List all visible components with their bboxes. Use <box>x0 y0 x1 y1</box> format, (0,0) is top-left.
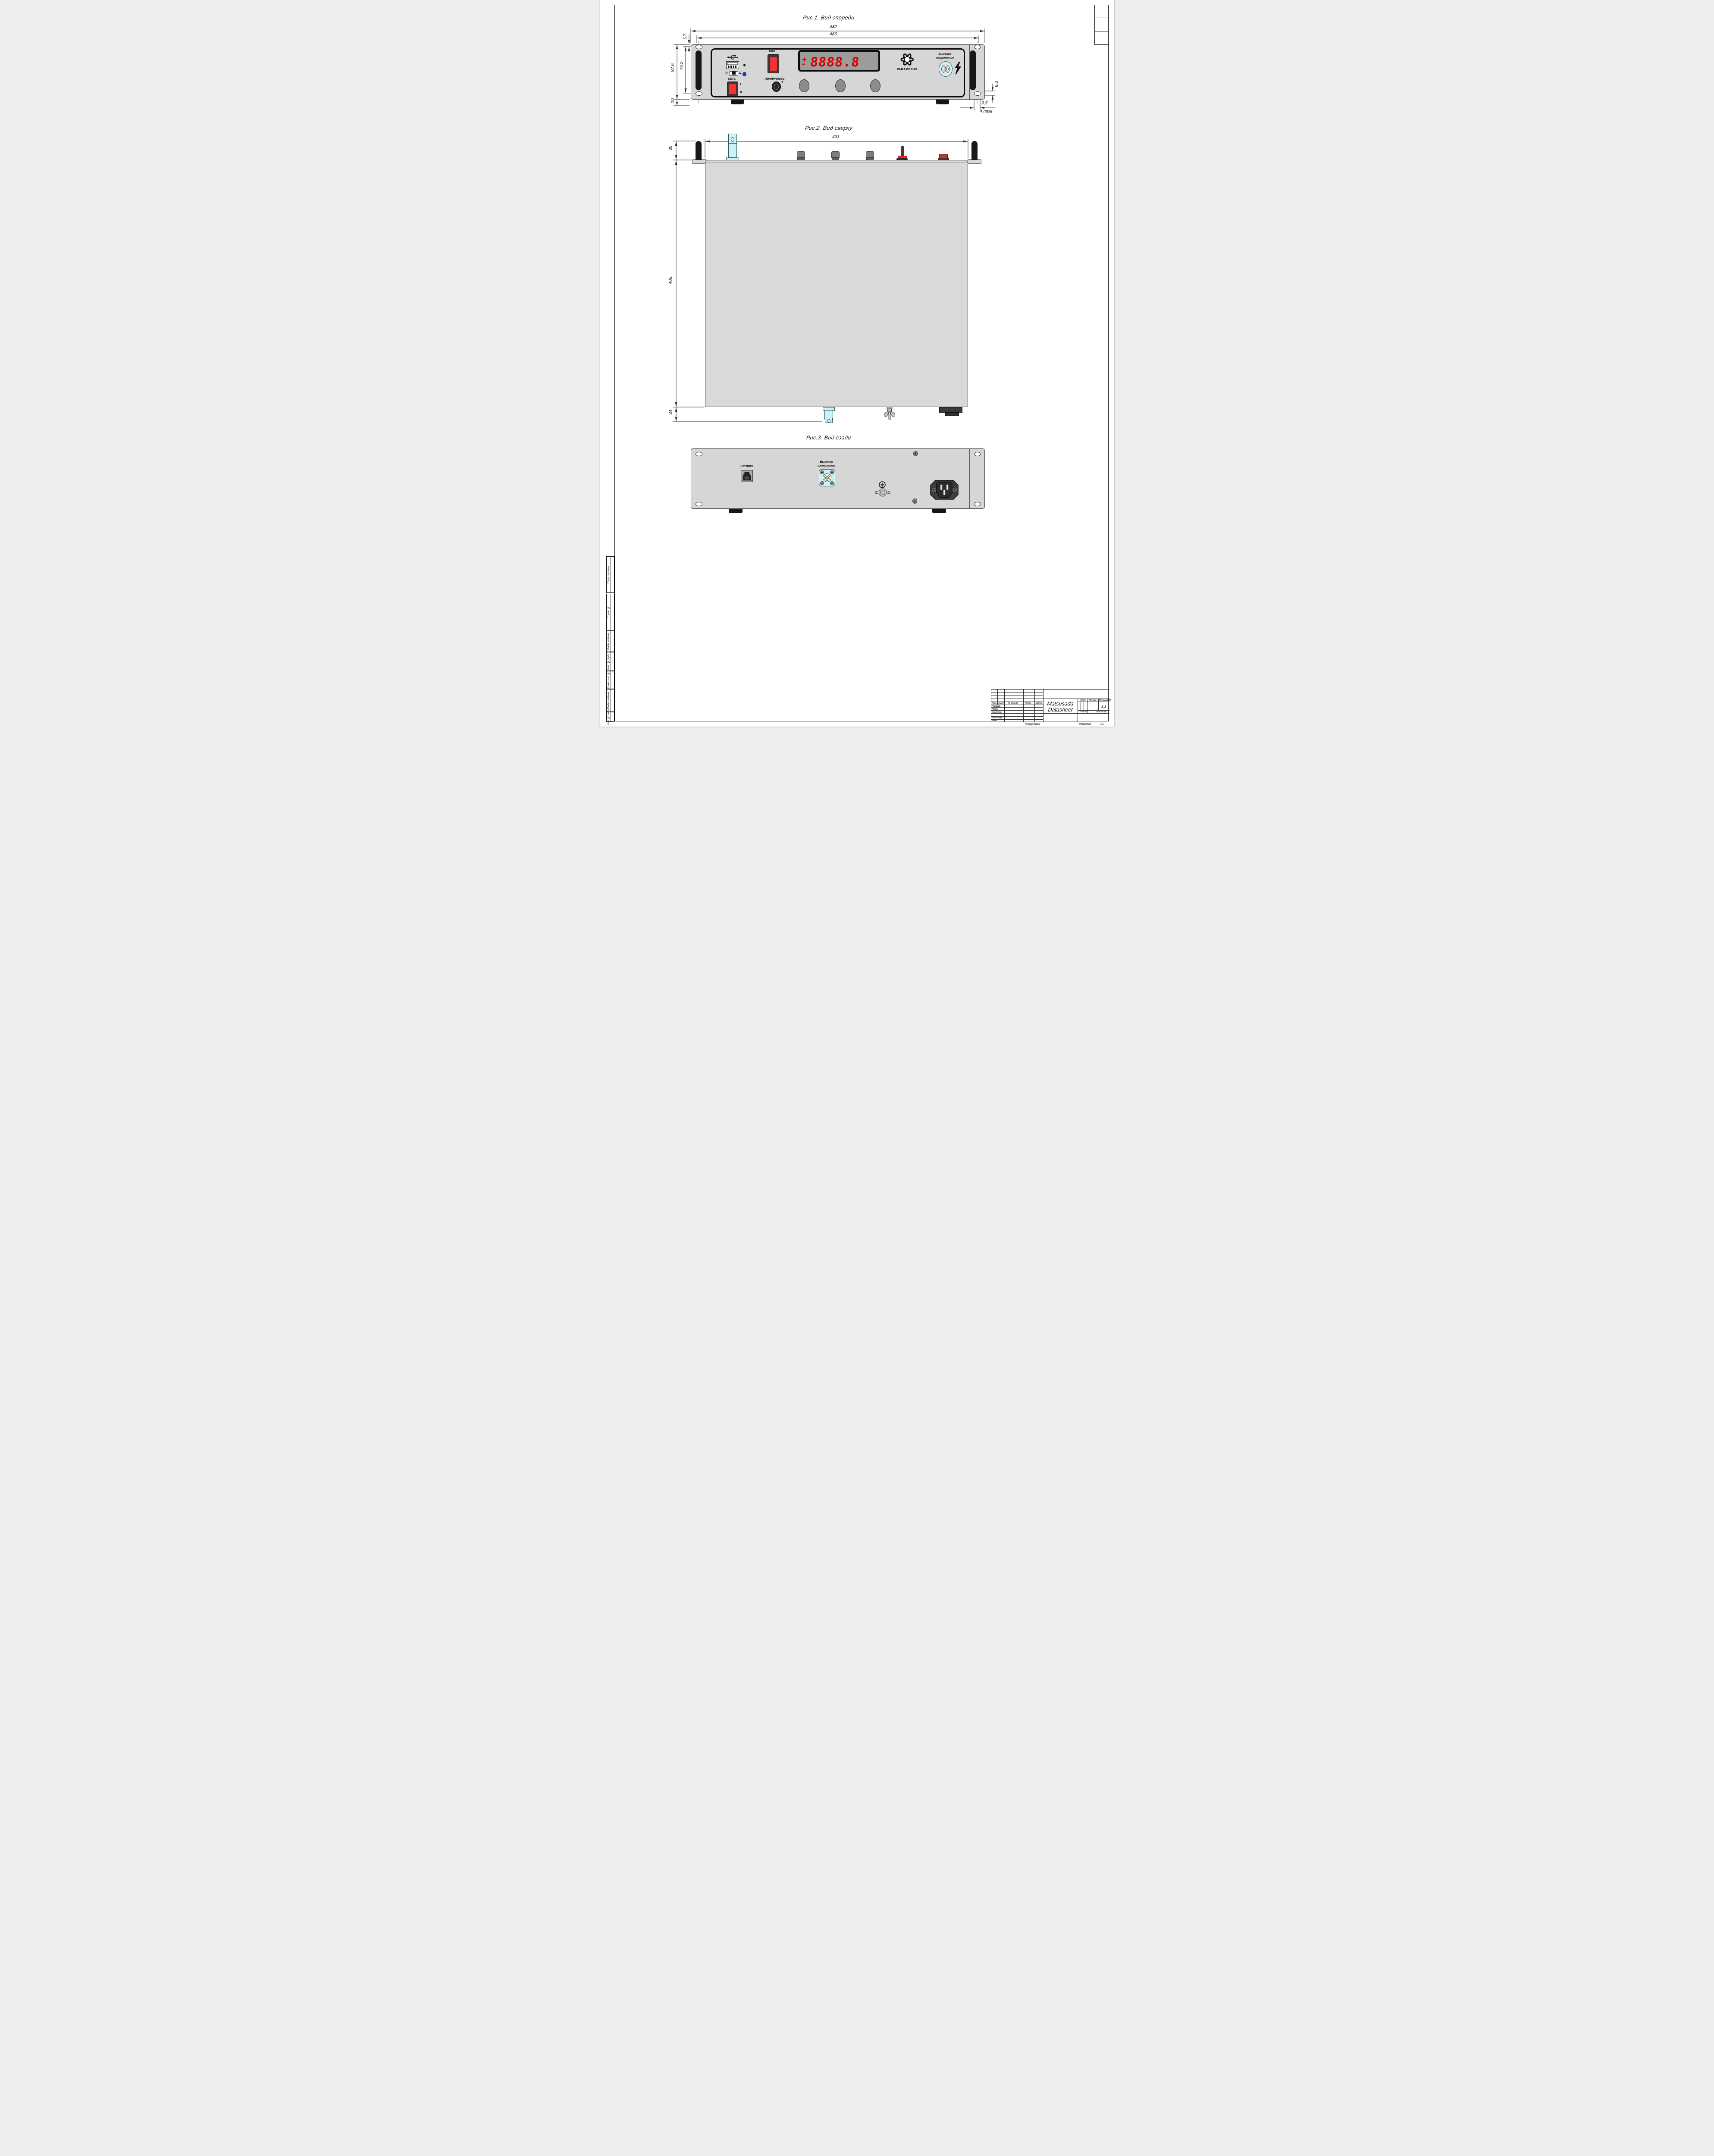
tb-lit: Лит. <box>1080 699 1086 702</box>
display-digits: 8888.8 <box>809 55 860 70</box>
dim-handle-depth: 30 <box>668 145 673 150</box>
dim-slot-height: 6,3 <box>994 81 999 87</box>
foot <box>936 100 949 104</box>
polarity-minus: - <box>782 87 783 91</box>
dim-body-depth: 405 <box>668 276 673 284</box>
rack-handle-right <box>970 50 976 90</box>
rear-ear-divider-left <box>707 449 707 509</box>
foot <box>731 100 744 104</box>
tb-row-prov: Пров. <box>991 708 998 711</box>
hv-connector <box>939 61 953 77</box>
polarity-plus: + <box>781 80 783 84</box>
mounting-slot <box>696 45 702 49</box>
tb-col-doc: № докум. <box>1007 702 1018 705</box>
mains-label: СЕТЬ <box>728 78 736 81</box>
mode-a-label: А <box>726 72 728 75</box>
mode-switch <box>730 71 738 76</box>
hv-connector-rear-cap <box>825 418 833 423</box>
polarity-toggle <box>772 81 781 92</box>
format-label: Формат <box>1078 723 1091 726</box>
tb-scale: Масштаб <box>1098 699 1111 702</box>
tb-row-tkontr: Т.контр. <box>991 711 1002 714</box>
margin-cell-perv-primen: Перв. примен. <box>606 556 614 593</box>
mode-c-label: Ц <box>739 72 742 75</box>
ground-wing-screw <box>874 488 891 497</box>
mounting-slot <box>696 452 702 456</box>
hv-connector-top-body <box>728 143 737 158</box>
tb-col-izm: Изм. <box>991 702 997 705</box>
hv-connector-top-cap <box>728 134 737 143</box>
knob-3 <box>870 79 881 92</box>
mounting-slot <box>974 91 981 96</box>
tb-massa: Масса <box>1088 699 1097 702</box>
tb-col-date: Дата <box>1035 702 1042 705</box>
tb-col-list: Лист <box>998 702 1004 705</box>
brand-label: PARAMERUS <box>895 68 919 71</box>
top-chassis <box>705 160 968 407</box>
margin-cell-vzam: Взам. инв. № <box>606 671 614 689</box>
margin-label: Справ. № <box>607 594 611 631</box>
lightning-icon <box>954 62 962 75</box>
hv-rear-connector <box>819 469 835 486</box>
tb-col-sign: Подп. <box>1025 702 1031 705</box>
margin-label: Инв. № подл. <box>607 712 611 722</box>
tb-scale-value: 1:1 <box>1101 704 1106 708</box>
mounting-slot <box>696 91 702 96</box>
display-sign-minus: - <box>800 60 806 69</box>
mounting-slot <box>974 45 981 49</box>
rack-handle-top-left <box>696 141 702 160</box>
panel-screw <box>912 498 917 504</box>
margin-label: Подп. и дата <box>607 631 611 652</box>
margin-label: Инв. № дубл. <box>607 652 611 671</box>
dim-slots-note: 4 паза <box>979 109 993 114</box>
margin-label: Перв. примен. <box>607 557 611 593</box>
mounting-slot <box>974 452 981 456</box>
mains-on-label: I <box>740 83 741 86</box>
drawing-sheet: Рис.1. Вид спереди 482 466 87,6 76,2 5,7… <box>600 0 1114 727</box>
dim-top-width: 431 <box>832 135 840 139</box>
dim-slot-width: 9,5 <box>981 101 987 106</box>
margin-cell-sprav: Справ. № <box>606 594 614 631</box>
power-button <box>768 54 779 73</box>
margin-cell-podp1: Подп. и дата <box>606 631 614 652</box>
rear-ear-divider-right <box>969 449 970 509</box>
led-dot <box>743 64 746 66</box>
figure3-title: Рис.3. Вид сзади <box>806 435 852 441</box>
dim-slot-spacing: 76,2 <box>680 61 684 70</box>
figure2-title: Рис.2. Вид сверху <box>805 125 853 131</box>
power-inlet <box>930 479 959 500</box>
tb-product-2: Datasheet <box>1043 707 1077 713</box>
mounting-slot <box>696 502 702 506</box>
ethernet-port <box>741 470 753 482</box>
tb-row-utv: Утв. <box>991 720 997 722</box>
hv-label-1: Высокое <box>932 53 958 56</box>
usb-icon <box>727 54 738 60</box>
rear-hv-label-2: напряжение <box>814 464 840 467</box>
mounting-slot <box>974 502 981 506</box>
rack-handle-left <box>696 50 702 90</box>
dim-face-width: 466 <box>829 32 837 37</box>
mains-switch <box>727 81 738 97</box>
power-button-label: ВКЛ <box>769 50 775 53</box>
tb-product-1: Matsusada <box>1043 701 1077 707</box>
dim-overall-height: 87,6 <box>671 63 675 72</box>
tb-row-razrab: Разраб. <box>991 705 1001 708</box>
dim-foot-height: 10 <box>671 98 675 103</box>
knob-2 <box>835 79 846 92</box>
rack-handle-top-right <box>971 141 978 160</box>
margin-label: Взам. инв. № <box>607 671 611 689</box>
dim-overall-width: 482 <box>829 25 837 29</box>
dim-rear-protrusion: 24 <box>668 409 673 414</box>
power-led-blue <box>743 72 746 76</box>
hv-label-2: напряжение <box>932 56 958 60</box>
margin-cell-inv-podl: Инв. № подл. <box>606 712 614 722</box>
tb-row-nkontr: Н.контр. <box>991 717 1002 719</box>
dim-top-to-slot: 5,7 <box>683 33 688 40</box>
knob-1 <box>799 79 809 92</box>
usb-port <box>726 61 739 69</box>
rear-hv-label-1: Высокое <box>814 461 840 464</box>
tb-listov-value: 1 <box>1106 711 1107 713</box>
brand-logo-icon <box>899 52 915 67</box>
ground-icon <box>879 481 886 488</box>
foot <box>932 509 946 513</box>
copied-label: Копировал <box>1025 723 1040 726</box>
ethernet-label: Ethernet <box>734 465 760 468</box>
mains-off-label: 0 <box>740 91 742 94</box>
tb-listov: Листов <box>1096 711 1106 713</box>
title-block: Изм. Лист № докум. Подп. Дата Разраб. Пр… <box>991 689 1109 722</box>
power-inlet-top-step <box>945 412 959 416</box>
seven-seg-display: + - 8888.8 <box>798 50 880 72</box>
panel-screw <box>913 451 918 456</box>
format-value: А0 <box>1100 723 1104 726</box>
margin-cell-inv-dubl: Инв. № дубл. <box>606 652 614 671</box>
ear-divider-left <box>707 45 707 100</box>
tb-list: Лист <box>1080 711 1087 713</box>
wing-screw-top <box>882 407 897 421</box>
foot <box>729 509 743 513</box>
figure1-title: Рис.1. Вид спереди <box>802 15 855 21</box>
